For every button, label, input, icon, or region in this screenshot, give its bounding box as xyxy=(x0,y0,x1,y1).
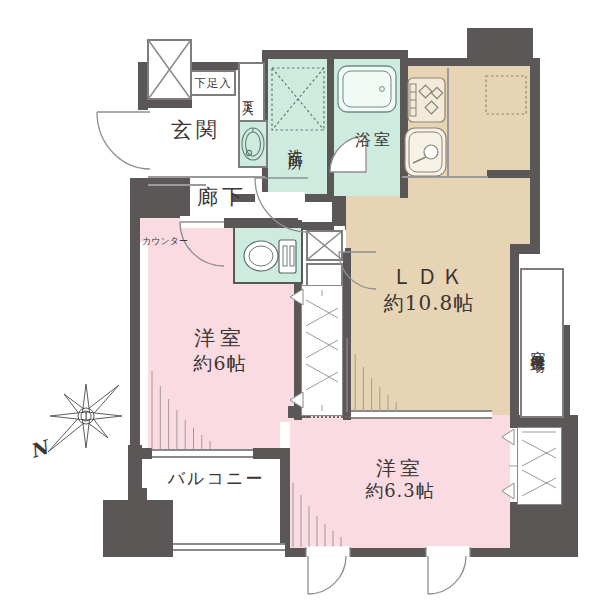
fridge-space-icon xyxy=(486,76,526,114)
bathtub-icon xyxy=(338,66,396,112)
closet2-fold-marks xyxy=(502,429,514,499)
kitchen-sink-icon xyxy=(405,128,446,176)
bedroom2-size: 約6.3帖 xyxy=(338,480,462,502)
bedroom1-name: 洋室 xyxy=(165,326,275,352)
toilet-icon xyxy=(244,240,296,273)
bedroom2-label: 洋室 約6.3帖 xyxy=(338,456,462,502)
closet2-hanger-icon xyxy=(509,432,556,496)
hallway-label: 廊下 xyxy=(190,185,254,211)
ldk-size: 約10.8帖 xyxy=(370,291,488,315)
stove-icon xyxy=(408,78,445,122)
washbasin-icon xyxy=(242,128,264,160)
closet1-fold-marks xyxy=(290,289,303,408)
ldk-label: ＬＤＫ 約10.8帖 xyxy=(370,264,488,315)
symbols-overlay xyxy=(0,0,600,600)
washroom-door-arc xyxy=(255,178,308,232)
entrance-door-arc xyxy=(97,112,150,169)
outdoor-unit-label: 室外機置場 xyxy=(528,276,546,412)
bedroom1-label: 洋室 約6帖 xyxy=(165,326,275,375)
closet1-hanger-icon xyxy=(306,290,338,411)
compass-icon xyxy=(48,384,122,452)
bedroom2-door1-arc xyxy=(308,556,346,594)
washroom-label: 洗面所 xyxy=(286,108,304,174)
bedroom1-size: 約6帖 xyxy=(165,352,275,375)
counter-label: カウンター xyxy=(136,236,194,247)
ldk-name: ＬＤＫ xyxy=(370,264,488,291)
floor-plan: 玄関 廊下 下足入 下足入 洗面所 浴室 カウンター ＬＤＫ 約10.8帖 洋室… xyxy=(0,0,600,600)
bedroom2-door2-arc xyxy=(428,556,466,594)
entrance-label: 玄関 xyxy=(160,118,232,144)
pipe-space-x-icon xyxy=(149,41,190,98)
balcony-label: バルコニー xyxy=(158,468,274,489)
shoe-cabinet-side-label: 下足入 xyxy=(241,66,255,120)
door-arcs xyxy=(97,112,470,594)
shoe-cabinet-top-label: 下足入 xyxy=(190,76,236,90)
bedroom2-name: 洋室 xyxy=(338,456,462,480)
bathroom-label: 浴室 xyxy=(348,130,400,150)
shaft-x-icon xyxy=(308,232,341,259)
